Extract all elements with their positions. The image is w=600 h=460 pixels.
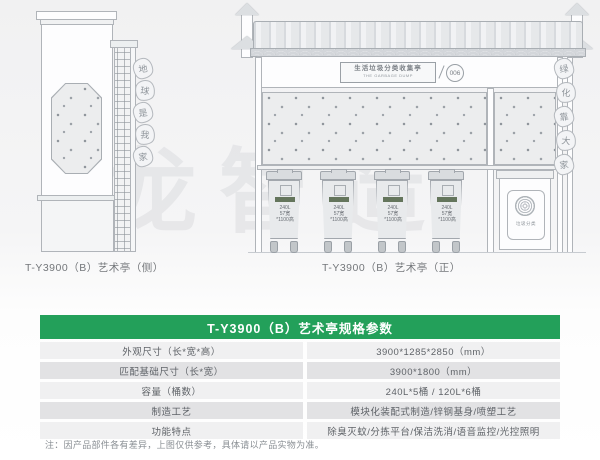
row-label: 匹配基础尺寸（长*宽） [40,362,303,379]
bin-lid [266,171,302,180]
bin-label-band [275,197,295,202]
bin-height: *1100高 [377,217,409,223]
medallion-char: 我 [140,128,150,142]
table-row: 制造工艺 模块化装配式制造/锌钢基身/喷塑工艺 [40,402,560,419]
bin-wheel-right [452,241,460,253]
bin-label-band [329,197,349,202]
bin-wheel-right [290,241,298,253]
row-value: 240L*5桶 / 120L*6桶 [307,382,560,399]
garbage-dump-sign: 生活垃圾分类收集亭 THE GARBAGE DUMP [340,62,436,83]
row-label: 制造工艺 [40,402,303,419]
bin-label-band [437,197,457,202]
medallion-char: 家 [138,149,149,163]
row-label: 外观尺寸（长*宽*高） [40,342,303,359]
sign-subtitle: THE GARBAGE DUMP [341,73,435,78]
medallion-char: 绿 [559,61,570,75]
bin-body: 240L 57宽 *1100高 [376,180,408,239]
table-row: 容量（桶数） 240L*5桶 / 120L*6桶 [40,382,560,399]
front-medallion-2: 化 [555,81,577,104]
bin-size-label: 240L 57宽 *1100高 [323,205,355,223]
bin-wheel-left [432,241,440,253]
front-post-mid [487,88,494,253]
bin-size-label: 240L 57宽 *1100高 [431,205,463,223]
recycle-swirl-icon [515,196,535,216]
bin-wheel-left [270,241,278,253]
bin-label-band [383,197,403,202]
bin-height: *1100高 [323,217,355,223]
front-post-left [255,57,262,253]
medallion-char: 大 [561,134,571,148]
front-wall-panel-right [494,92,556,165]
front-wall-panel-main [262,92,487,165]
front-finial-right-cone [565,3,589,15]
row-value: 除臭灭蚊/分拣平台/保洁洗消/语音监控/光控照明 [307,422,560,439]
side-medallion-2: 球 [134,79,156,102]
table-row: 匹配基础尺寸（长*宽） 3900*1800（mm） [40,362,560,379]
medallion-char: 靠 [559,109,570,123]
row-label: 容量（桶数） [40,382,303,399]
bin-height: *1100高 [431,217,463,223]
sign-title: 生活垃圾分类收集亭 [341,65,435,73]
side-pedestal [41,200,114,252]
medallion-char: 化 [561,86,571,100]
front-roof-tiles [253,21,583,49]
bin-recess [388,185,400,196]
side-octagon-border [51,83,102,174]
row-value: 3900*1800（mm） [307,362,560,379]
row-label: 功能特点 [40,422,303,439]
medallion-char: 是 [138,105,149,119]
bin-height: *1100高 [269,217,301,223]
bin-size-label: 240L 57宽 *1100高 [269,205,301,223]
bin-size-label: 240L 57宽 *1100高 [377,205,409,223]
bin-wheel-right [344,241,352,253]
logo-frame: 垃圾分类 [507,190,545,240]
bin-wheel-left [378,241,386,253]
bin-lid [374,171,410,180]
bin-recess [442,185,454,196]
disclaimer-note: 注：因产品部件各有差异，上图仅供参考，具体请以产品实物为准。 [45,438,324,451]
side-medallion-4: 我 [134,123,156,146]
medallion-char: 球 [140,84,150,98]
bin-body: 240L 57宽 *1100高 [322,180,354,239]
trash-bin-1: 240L 57宽 *1100高 [266,170,302,253]
logo-panel-body: 垃圾分类 [499,178,551,250]
medallion-char: 家 [559,157,570,171]
front-view-caption: T-Y3900（B）艺术亭（正） [322,260,461,275]
bin-lid [320,171,356,180]
logo-caption: 垃圾分类 [508,221,544,227]
table-row: 外观尺寸（长*宽*高） 3900*1285*2850（mm） [40,342,560,359]
bin-recess [334,185,346,196]
bin-lid [428,171,464,180]
sign-number-badge: 006 [446,64,464,82]
side-meander-column [114,47,131,252]
front-finial-left-cone [235,3,259,15]
bin-body: 240L 57宽 *1100高 [430,180,462,239]
front-medallion-4: 大 [555,129,577,152]
medallion-char: 地 [138,61,149,75]
bin-body: 240L 57宽 *1100高 [268,180,300,239]
trash-bin-4: 240L 57宽 *1100高 [428,170,464,253]
spec-table-title: T-Y3900（B）艺术亭规格参数 [40,315,560,339]
side-octagon-panel [52,84,101,173]
bin-recess [280,185,292,196]
bin-wheel-right [398,241,406,253]
table-row: 功能特点 除臭灭蚊/分拣平台/保洁洗消/语音监控/光控照明 [40,422,560,439]
trash-bin-3: 240L 57宽 *1100高 [374,170,410,253]
spec-sheet: 龙智造 地 球 是 我 家 T-Y3900（B）艺术亭（侧） [0,0,600,460]
bin-wheel-left [324,241,332,253]
row-value: 3900*1285*2850（mm） [307,342,560,359]
trash-bin-2: 240L 57宽 *1100高 [320,170,356,253]
spec-table: T-Y3900（B）艺术亭规格参数 外观尺寸（长*宽*高） 3900*1285*… [40,315,560,439]
row-value: 模块化装配式制造/锌钢基身/喷塑工艺 [307,402,560,419]
side-view-caption: T-Y3900（B）艺术亭（侧） [25,260,164,275]
